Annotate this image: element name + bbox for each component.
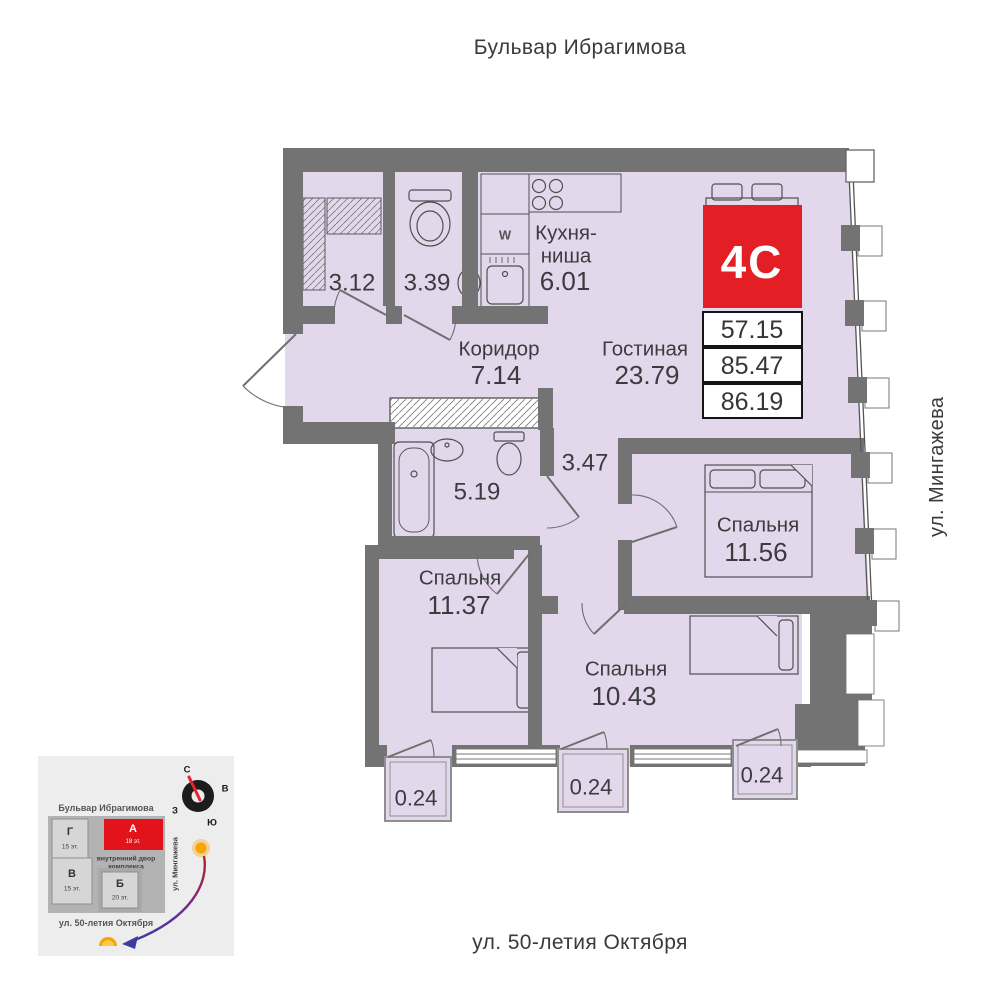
window — [456, 749, 556, 764]
bedroom2-name: Спальня — [419, 567, 501, 590]
corridor-name: Коридор — [459, 338, 540, 361]
unit-area-3: 86.19 — [721, 388, 784, 416]
minimap-buildings: Г 15 эт. В 15 эт. А 18 эт. внутренний дв… — [48, 816, 165, 913]
hall-area: 3.47 — [562, 450, 609, 477]
kitchen-area: 6.01 — [540, 266, 591, 296]
closet-area: 3.12 — [329, 270, 376, 297]
building-a-label: А — [129, 823, 137, 835]
wc-area: 3.39 — [404, 270, 451, 297]
compass-e: В — [222, 784, 229, 795]
window — [634, 749, 731, 764]
building-b-floors: 20 эт. — [112, 895, 128, 902]
unit-area-2: 85.47 — [721, 352, 784, 380]
unit-badge: 4С 57.15 85.47 86.19 — [703, 205, 802, 418]
site-minimap: С В З Ю Бульвар Ибрагимова Г 15 эт. В 15… — [38, 756, 234, 956]
closet-shelf-icon — [303, 198, 325, 290]
unit-area-1: 57.15 — [721, 316, 784, 344]
living-name: Гостиная — [602, 338, 688, 361]
building-v-label: В — [68, 868, 76, 880]
building-a-floors: 18 эт. — [125, 839, 140, 845]
unit-type-label: 4С — [721, 236, 784, 288]
bedroom1-name: Спальня — [717, 514, 799, 537]
compass-n: С — [184, 765, 191, 776]
minimap-street-bottom: ул. 50-летия Октября — [59, 918, 153, 928]
corridor-area: 7.14 — [471, 360, 522, 390]
closet-shelf-icon — [327, 198, 381, 234]
balcony1-area: 0.24 — [395, 786, 438, 811]
washer-symbol: W — [499, 228, 512, 243]
kitchen-name-2: ниша — [541, 245, 592, 268]
kitchen-name-1: Кухня- — [535, 222, 597, 245]
building-b-label: Б — [116, 878, 124, 890]
courtyard-line1: внутренний двор — [97, 855, 156, 863]
building-g — [52, 819, 88, 858]
building-g-label: Г — [67, 826, 74, 838]
compass-s: Ю — [207, 818, 217, 829]
sun-icon — [192, 839, 210, 857]
bedroom2-area: 11.37 — [427, 590, 490, 620]
compass-w: З — [172, 806, 178, 817]
vent-shaft-hatch — [390, 398, 540, 428]
window — [793, 750, 867, 763]
window — [846, 634, 874, 694]
balcony3-area: 0.24 — [741, 763, 784, 788]
bedroom3-area: 10.43 — [591, 681, 656, 711]
building-v — [52, 858, 92, 904]
bathroom-area: 5.19 — [454, 479, 501, 506]
window — [858, 700, 884, 746]
bedroom3-name: Спальня — [585, 658, 667, 681]
balcony2-area: 0.24 — [570, 775, 613, 800]
bedroom1-area: 11.56 — [724, 537, 787, 567]
facade-column — [846, 150, 874, 182]
floorplan-page: Бульвар Ибрагимова ул. Мингажева ул. 50-… — [0, 0, 1000, 1000]
building-v-floors: 15 эт. — [64, 886, 80, 893]
living-area: 23.79 — [614, 360, 679, 390]
minimap-street-right: ул. Мингажева — [171, 836, 180, 891]
building-g-floors: 15 эт. — [62, 844, 78, 851]
minimap-street-top: Бульвар Ибрагимова — [58, 803, 154, 813]
